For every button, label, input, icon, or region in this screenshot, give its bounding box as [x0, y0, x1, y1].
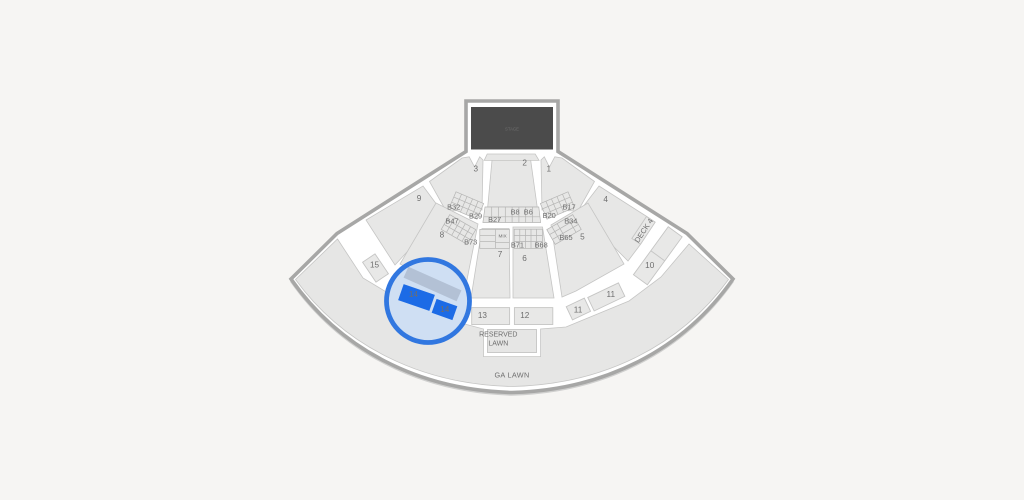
svg-text:9: 9 — [417, 194, 422, 203]
svg-text:13: 13 — [478, 311, 488, 320]
svg-text:12: 12 — [520, 311, 530, 320]
svg-text:B20: B20 — [543, 211, 556, 220]
svg-text:1: 1 — [547, 165, 552, 174]
svg-text:B29: B29 — [469, 212, 482, 221]
svg-text:LAWN: LAWN — [488, 341, 508, 348]
svg-text:STAGE: STAGE — [505, 127, 519, 132]
svg-text:B73: B73 — [464, 238, 477, 247]
svg-text:B34: B34 — [564, 216, 577, 225]
svg-text:4: 4 — [603, 195, 608, 204]
svg-text:GA LAWN: GA LAWN — [494, 370, 529, 379]
svg-text:B71: B71 — [511, 240, 524, 249]
svg-text:14: 14 — [409, 290, 419, 299]
svg-text:5: 5 — [580, 233, 585, 242]
svg-text:14: 14 — [440, 305, 450, 314]
svg-text:2: 2 — [522, 159, 527, 168]
svg-text:10: 10 — [645, 261, 655, 270]
svg-text:RESERVED: RESERVED — [479, 331, 517, 338]
svg-text:B17: B17 — [563, 203, 576, 212]
svg-text:7: 7 — [498, 250, 503, 259]
svg-text:B8: B8 — [511, 207, 520, 216]
svg-text:B32: B32 — [447, 202, 460, 211]
svg-text:11: 11 — [574, 305, 583, 314]
svg-text:3: 3 — [474, 164, 479, 173]
svg-text:MIX: MIX — [499, 234, 507, 239]
svg-text:15: 15 — [370, 261, 380, 270]
svg-text:B68: B68 — [535, 240, 548, 249]
svg-text:B27: B27 — [488, 215, 501, 224]
svg-text:B47: B47 — [445, 217, 458, 226]
svg-text:6: 6 — [522, 254, 527, 263]
svg-text:11: 11 — [607, 290, 616, 299]
svg-text:8: 8 — [440, 231, 445, 240]
svg-text:B6: B6 — [524, 207, 533, 216]
svg-text:B65: B65 — [559, 233, 572, 242]
